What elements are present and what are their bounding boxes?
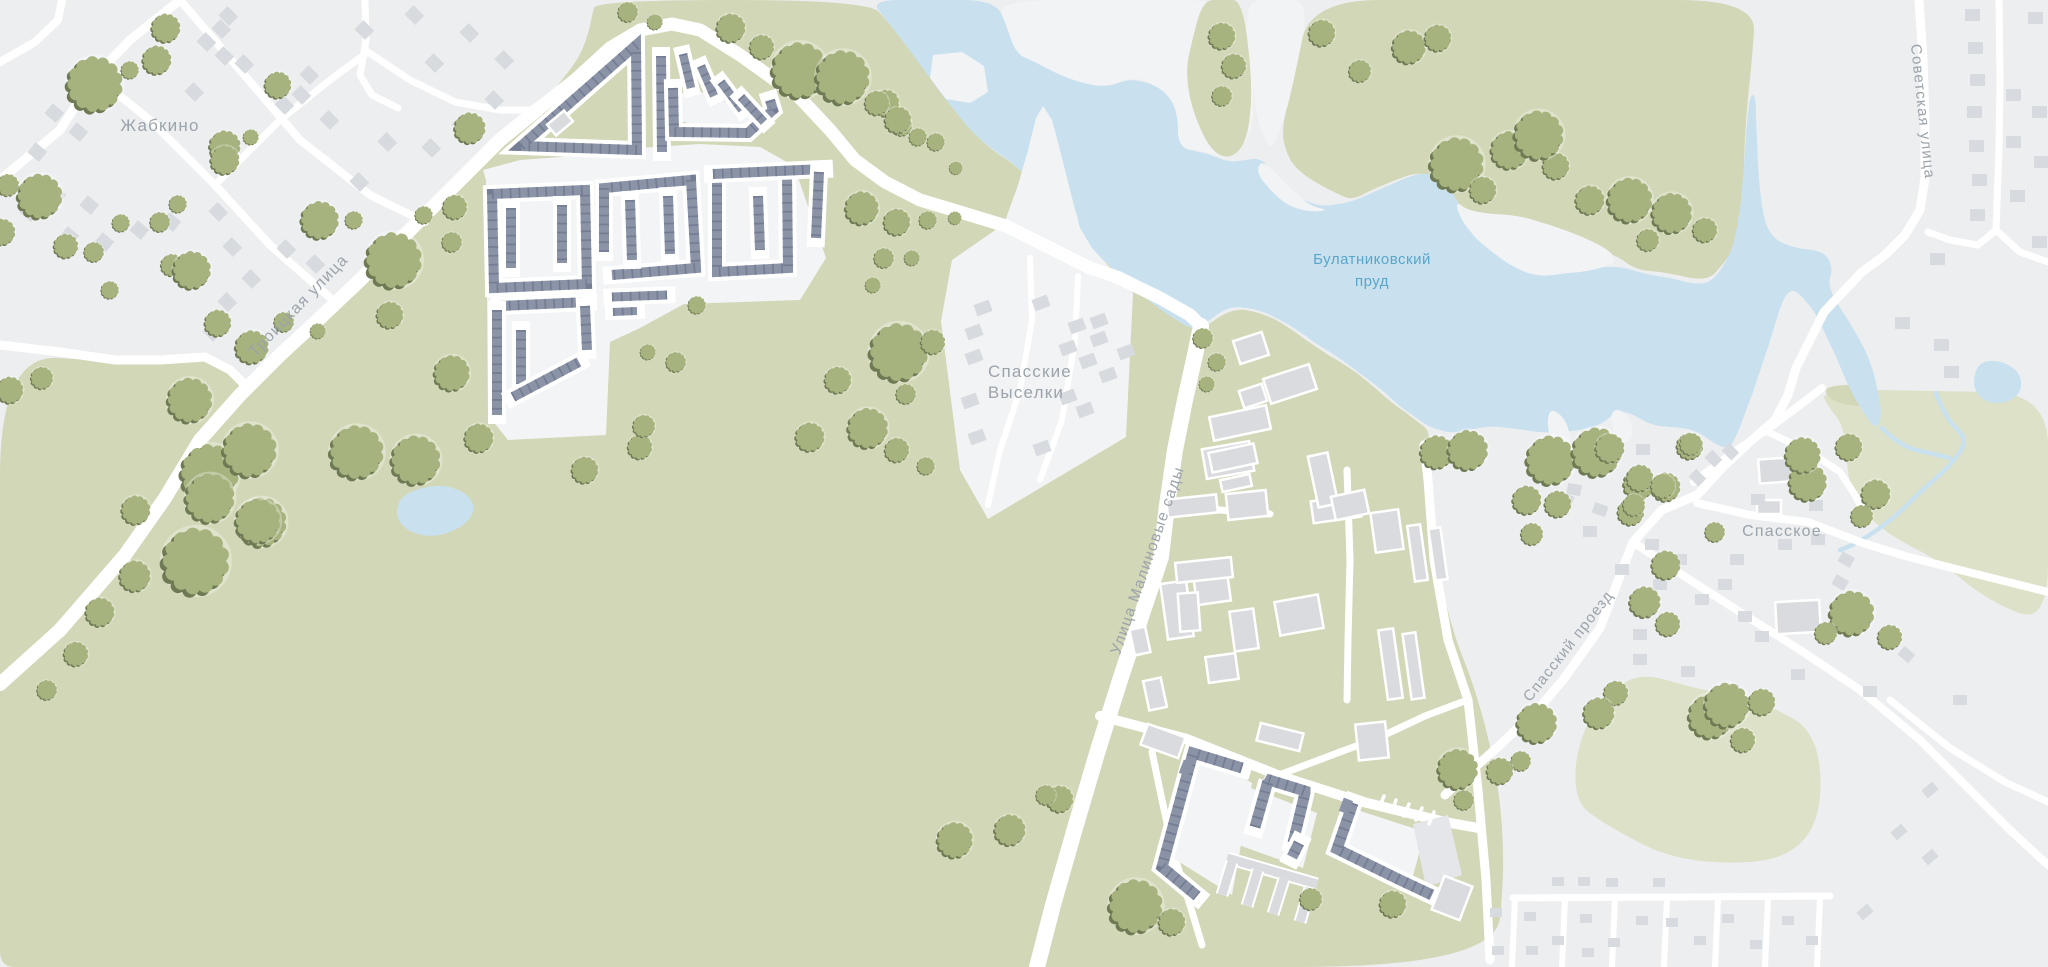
svg-text:Спасские: Спасские [988, 362, 1072, 381]
svg-text:Жабкино: Жабкино [120, 116, 199, 135]
svg-text:пруд: пруд [1355, 273, 1389, 290]
svg-text:Спасское: Спасское [1742, 523, 1822, 540]
svg-text:Выселки: Выселки [988, 383, 1064, 402]
svg-text:Булатниковский: Булатниковский [1313, 251, 1431, 268]
